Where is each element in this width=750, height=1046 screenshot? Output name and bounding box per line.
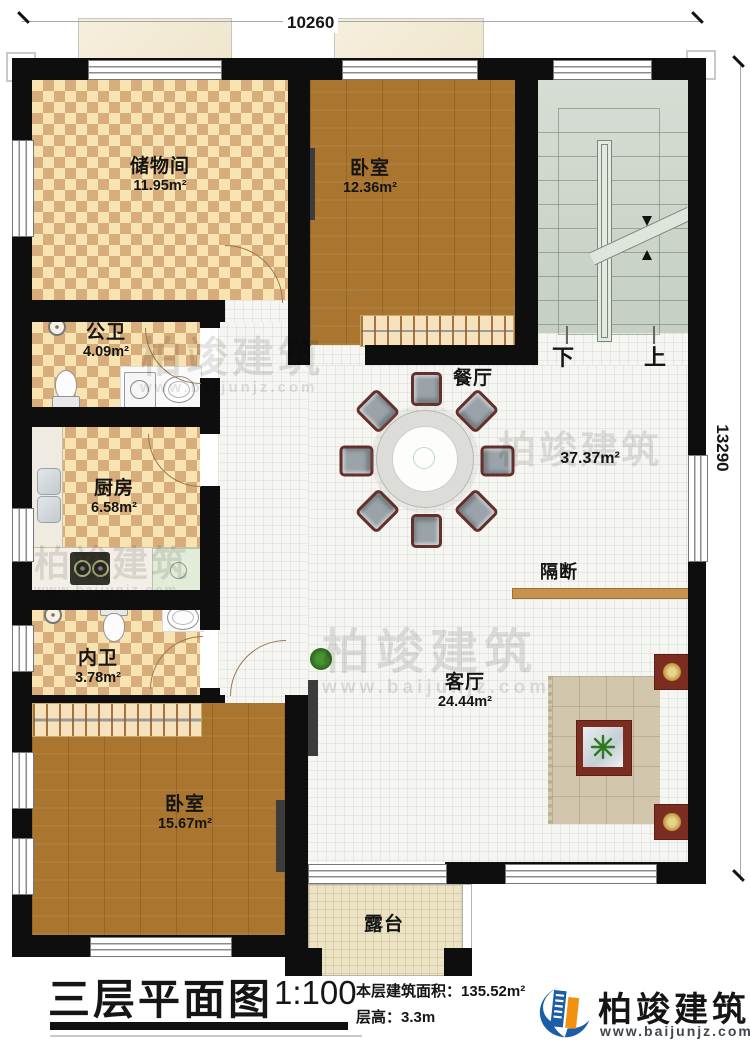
room-label-living: 客厅 24.44m² xyxy=(415,672,515,711)
partition-label: 隔断 xyxy=(524,562,594,583)
wall xyxy=(515,58,538,345)
window xyxy=(88,60,222,80)
room-label-terrace: 露台 xyxy=(344,914,424,936)
wall xyxy=(288,58,310,365)
stairs-up-label: 上 xyxy=(644,340,666,372)
wall xyxy=(12,695,225,703)
room-label-bedroom-bottom: 卧室 15.67m² xyxy=(125,794,245,833)
room-label-dining: 餐厅 xyxy=(438,368,508,390)
floor-area-line: 本层建筑面积：135.52m² xyxy=(356,980,525,1001)
dimension-width-label: 10260 xyxy=(283,13,338,33)
floor-height-line: 层高：3.3m xyxy=(356,1006,435,1027)
wardrobe xyxy=(360,315,514,347)
wall xyxy=(200,300,220,328)
page-title: 三层平面图 xyxy=(48,966,273,1027)
room-label-bedroom-top: 卧室 12.36m² xyxy=(312,158,428,197)
stairs-down-label: 下 xyxy=(552,340,574,372)
coffee-table xyxy=(576,720,632,776)
terrace-sliding-door xyxy=(308,864,447,884)
dining-area-value: 37.37m² xyxy=(540,450,640,468)
dimension-line-top xyxy=(22,21,702,22)
dimension-line-right xyxy=(740,64,741,880)
wall xyxy=(12,590,220,610)
washing-machine xyxy=(124,372,156,408)
terrace-pillar xyxy=(444,948,472,976)
scale-value: 1:100 xyxy=(274,974,357,1012)
dining-chair xyxy=(340,446,374,477)
window xyxy=(688,455,708,562)
window xyxy=(553,60,652,80)
window xyxy=(12,625,34,672)
stair-direction-arrow xyxy=(642,216,652,226)
wall xyxy=(285,695,308,976)
room-label-public-bath: 公卫 4.09m² xyxy=(56,322,156,361)
window xyxy=(342,60,478,80)
door-threshold xyxy=(305,345,367,365)
room-label-private-bath: 内卫 3.78m² xyxy=(48,648,148,687)
dimension-tick xyxy=(732,55,745,68)
stair-direction-arrow xyxy=(642,250,652,260)
tv xyxy=(308,680,318,756)
dimension-tick xyxy=(732,869,745,882)
end-table xyxy=(654,654,690,690)
room-label-kitchen: 厨房 6.58m² xyxy=(64,478,164,517)
wall xyxy=(12,407,220,427)
wall xyxy=(12,300,225,322)
plant-icon xyxy=(590,734,616,760)
stair-railing xyxy=(597,140,612,342)
partition-bar xyxy=(512,588,690,599)
end-table xyxy=(654,804,690,840)
title-underline-light xyxy=(50,1035,362,1037)
window xyxy=(12,508,34,562)
toilet xyxy=(103,613,125,642)
wardrobe xyxy=(32,703,202,737)
floor-plan-sheet: 10260 13290 下 上 xyxy=(0,0,750,1046)
window xyxy=(505,864,657,884)
counter-board xyxy=(152,548,204,592)
terrace-pillar xyxy=(294,948,322,976)
company-logo-icon xyxy=(534,982,592,1040)
window xyxy=(12,140,34,237)
title-underline xyxy=(50,1022,348,1030)
wall xyxy=(365,345,538,365)
plant-icon xyxy=(310,648,332,670)
dining-chair xyxy=(411,514,442,548)
kitchen-sink xyxy=(37,468,61,495)
stove xyxy=(70,552,110,585)
window xyxy=(12,752,34,809)
room-label-storage: 储物间 11.95m² xyxy=(100,156,220,195)
window xyxy=(90,937,232,957)
tv xyxy=(276,800,285,872)
dimension-height-label: 13290 xyxy=(712,414,732,482)
company-logo-url: www.baijunjz.com xyxy=(600,1023,750,1039)
dining-table-center xyxy=(413,447,435,469)
kitchen-sink xyxy=(37,496,61,523)
dining-chair xyxy=(481,446,515,477)
window xyxy=(12,838,34,895)
door-threshold xyxy=(225,300,288,322)
